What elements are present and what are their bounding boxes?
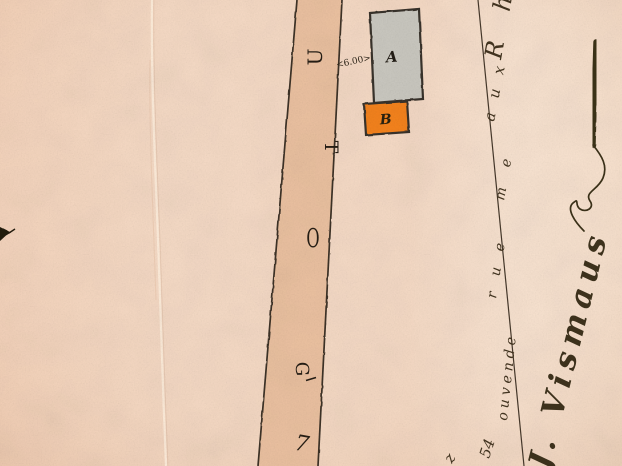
- scanned-map-page: U T O G 7 <6.00> A B z 54 ouvende rue me…: [0, 0, 622, 466]
- paper-grain: [0, 0, 622, 466]
- map-canvas: U T O G 7 <6.00> A B z 54 ouvende rue me…: [0, 0, 622, 466]
